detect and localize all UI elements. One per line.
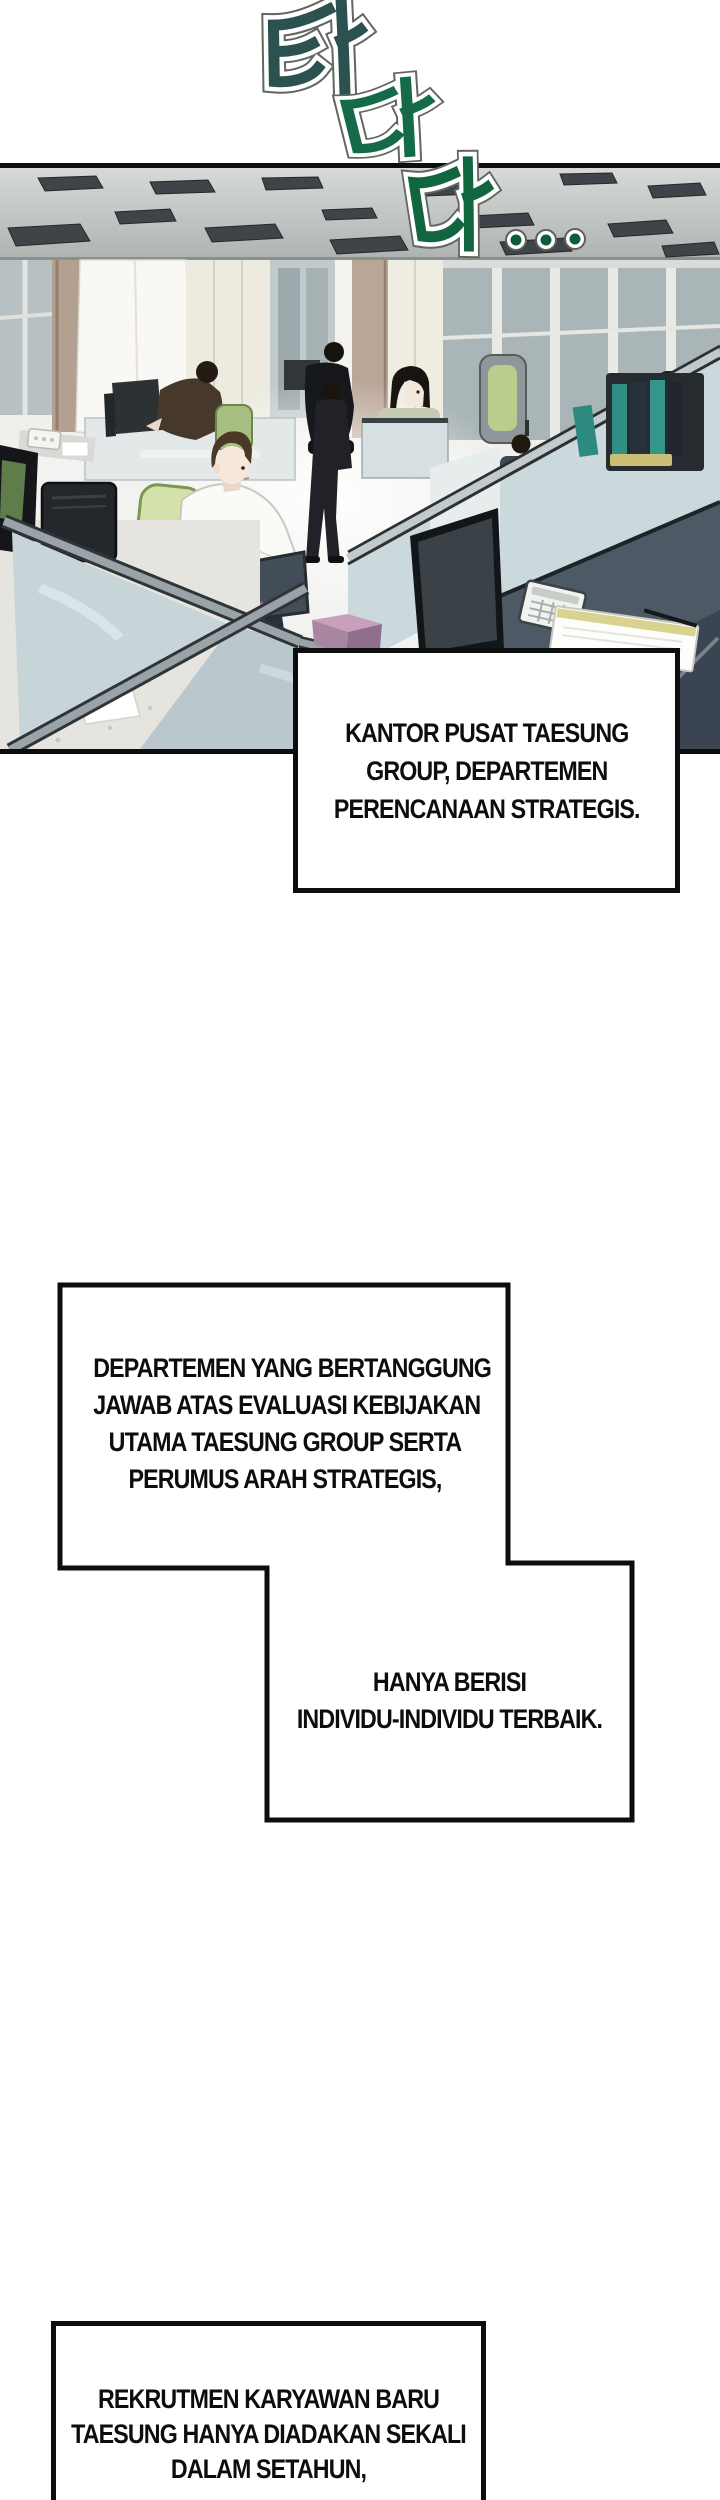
caption-box-1: KANTOR PUSAT TAESUNG GROUP, DEPARTEMEN P… (293, 648, 680, 893)
caption-box-2-lower-text: HANYA BERISI INDIVIDU-INDIVIDU TERBAIK. (293, 1664, 607, 1738)
caption-line: REKRUTMEN KARYAWAN BARU (71, 2382, 466, 2417)
caption-line: DEPARTEMEN YANG BERTANGGUNG (93, 1350, 477, 1387)
caption-line: PERENCANAAN STRATEGIS. (334, 790, 640, 828)
caption-3-text: REKRUTMEN KARYAWAN BARU TAESUNG HANYA DI… (71, 2382, 466, 2487)
caption-line: KANTOR PUSAT TAESUNG (334, 714, 640, 752)
caption-box-2-upper-text: DEPARTEMEN YANG BERTANGGUNG JAWAB ATAS E… (93, 1350, 477, 1498)
binder-teal (612, 384, 627, 456)
caption-1-text: KANTOR PUSAT TAESUNG GROUP, DEPARTEMEN P… (334, 714, 640, 828)
caption-line: DALAM SETAHUN, (71, 2452, 466, 2487)
caption-line: UTAMA TAESUNG GROUP SERTA (93, 1424, 477, 1461)
caption-line: PERUMUS ARAH STRATEGIS, (93, 1461, 477, 1498)
worker-suit-sitting-head (324, 342, 344, 362)
caption-line: HANYA BERISI (293, 1664, 607, 1701)
sfx-char-ta (266, 1, 368, 99)
worker-brown-jacket-head (196, 361, 218, 383)
worker-brown-jacket (156, 378, 223, 440)
binder-navy (630, 382, 647, 456)
caption-line: GROUP, DEPARTEMEN (334, 752, 640, 790)
ceiling (0, 168, 720, 260)
tall-green-chair (480, 355, 526, 443)
caption-line: JAWAB ATAS EVALUASI KEBIJAKAN (93, 1387, 477, 1424)
black-chair-green-pad (0, 460, 26, 522)
caption-line: INDIVIDU-INDIVIDU TERBAIK. (293, 1701, 607, 1738)
caption-line: TAESUNG HANYA DIADAKAN SEKALI (71, 2417, 466, 2452)
folder-yellow (610, 454, 672, 466)
caption-box-3: REKRUTMEN KARYAWAN BARU TAESUNG HANYA DI… (51, 2321, 486, 2500)
sfx-char-da-1 (344, 78, 435, 160)
ear (214, 464, 221, 474)
comic-page: KANTOR PUSAT TAESUNG GROUP, DEPARTEMEN P… (0, 0, 720, 2500)
desk-phone (27, 428, 61, 449)
